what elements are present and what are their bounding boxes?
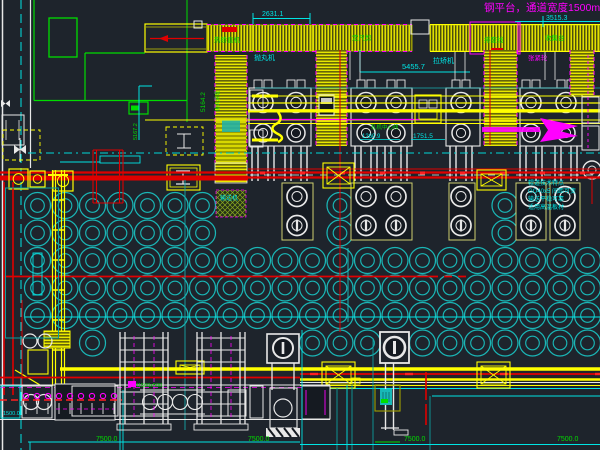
svg-text:3515.3: 3515.3 — [546, 15, 568, 22]
svg-text:7500.0: 7500.0 — [96, 436, 118, 443]
svg-text:5455.7: 5455.7 — [402, 62, 425, 71]
svg-text:7500.0: 7500.0 — [248, 436, 270, 443]
svg-text:热矫直机: 热矫直机 — [214, 35, 241, 44]
svg-text:输送平稳可靠: 输送平稳可靠 — [528, 195, 564, 203]
svg-text:5164.2: 5164.2 — [200, 92, 207, 112]
svg-text:辊道技术特点: 辊道技术特点 — [528, 179, 564, 187]
svg-text:1751.5: 1751.5 — [413, 133, 433, 140]
svg-text:抛丸清理: 抛丸清理 — [214, 91, 221, 111]
svg-text:排废线: 排废线 — [484, 35, 504, 44]
svg-text:7500.0: 7500.0 — [404, 436, 426, 443]
svg-text:拉矫机: 拉矫机 — [433, 56, 454, 65]
svg-text:轧机中心线: 轧机中心线 — [371, 123, 399, 131]
svg-text:GQ40x5 间距可变: GQ40x5 间距可变 — [528, 187, 576, 195]
svg-text:1500.0: 1500.0 — [3, 411, 20, 417]
svg-text:钢平台，通道宽度1500m: 钢平台，通道宽度1500m — [484, 1, 600, 14]
svg-text:5167.2: 5167.2 — [133, 123, 139, 140]
svg-text:2631.1: 2631.1 — [262, 11, 284, 18]
svg-text:收集台: 收集台 — [545, 33, 565, 42]
svg-text:7500.0: 7500.0 — [557, 436, 579, 443]
svg-text:适用高温板材: 适用高温板材 — [528, 203, 564, 211]
svg-text:定尺剪: 定尺剪 — [352, 33, 372, 42]
svg-text:输送机: 输送机 — [220, 194, 238, 202]
svg-text:抛丸机: 抛丸机 — [254, 53, 275, 62]
